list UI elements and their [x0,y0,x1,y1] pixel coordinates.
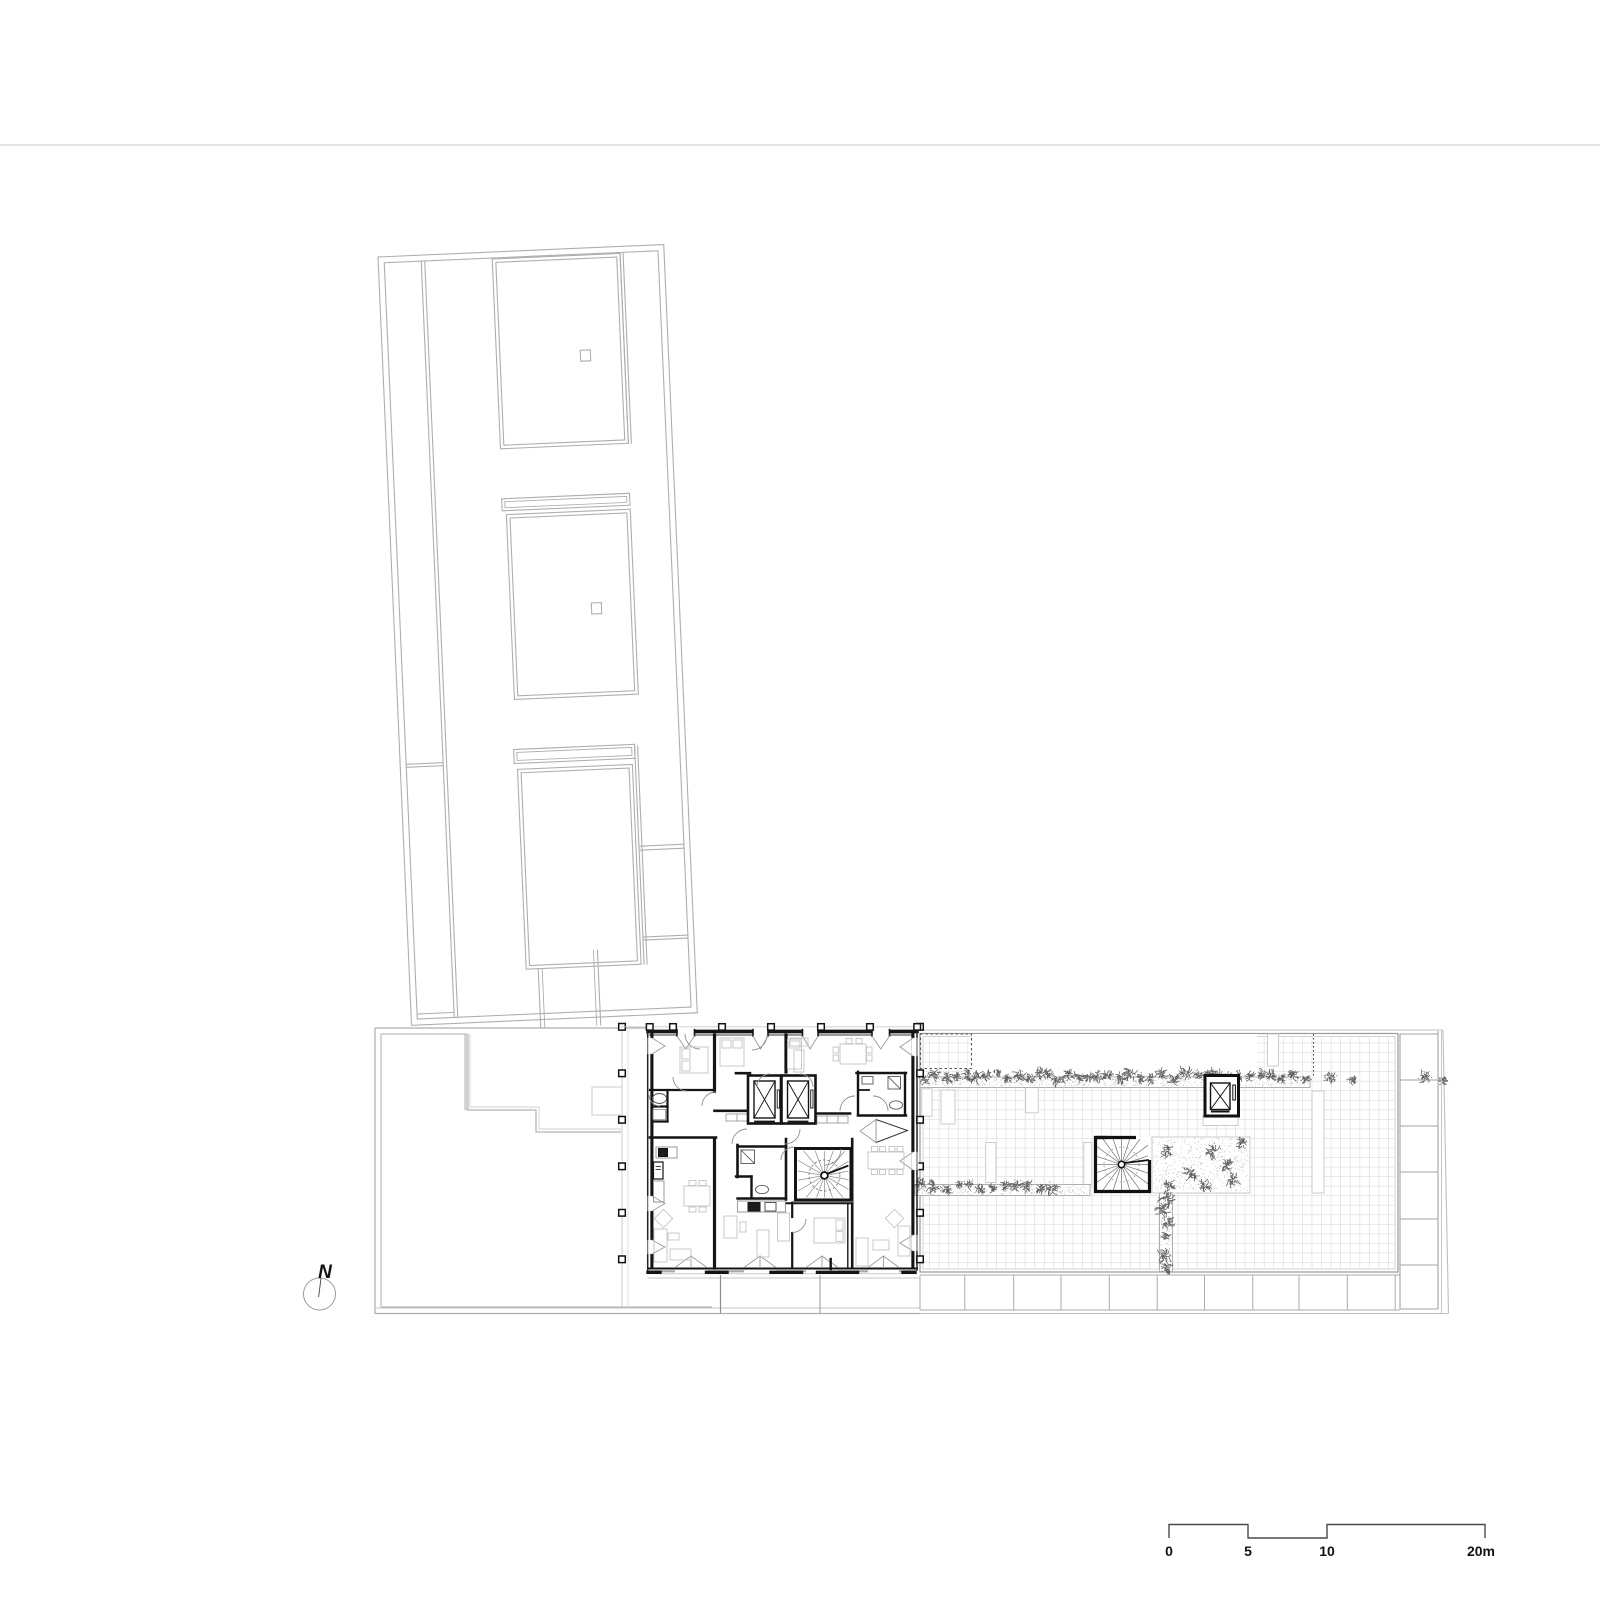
svg-text:10: 10 [1319,1543,1335,1559]
svg-text:20m: 20m [1467,1543,1495,1559]
svg-text:5: 5 [1244,1543,1252,1559]
svg-text:0: 0 [1165,1543,1173,1559]
svg-text:N: N [318,1262,333,1283]
